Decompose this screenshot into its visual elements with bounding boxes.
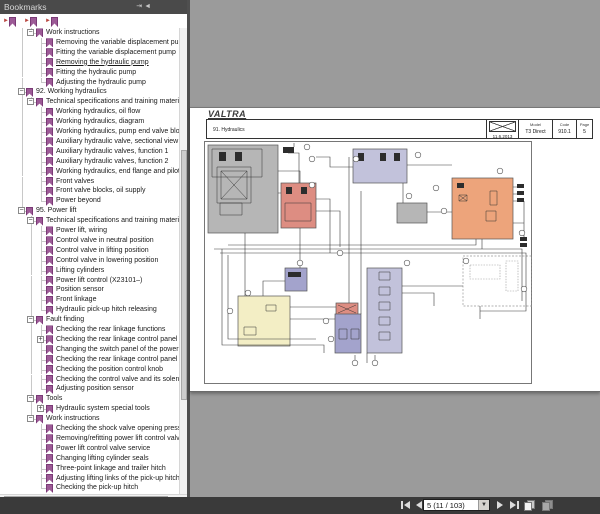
tree-guide xyxy=(31,266,32,276)
triangle-left-icon xyxy=(404,501,410,509)
tree-guide xyxy=(41,280,46,281)
bookmark-icon[interactable] xyxy=(46,375,53,384)
bar xyxy=(401,501,403,509)
bookmark-item[interactable]: Power lift control valve service xyxy=(56,444,150,454)
page-number-select[interactable]: 5 (11 / 103) ▼ xyxy=(423,499,490,511)
tree-guide xyxy=(41,330,46,331)
bookmark-icon[interactable] xyxy=(46,276,53,285)
tree-guide xyxy=(41,172,46,173)
bookmark-item[interactable]: Front linkage xyxy=(56,295,96,305)
bookmarks-panel-title: Bookmarks xyxy=(4,2,47,12)
bookmark-icon[interactable] xyxy=(46,157,53,166)
bookmark-icon[interactable] xyxy=(46,306,53,315)
tree-guide xyxy=(31,295,32,305)
bookmark-item[interactable]: Position sensor xyxy=(56,285,104,295)
bookmark-icon[interactable] xyxy=(26,88,33,97)
tree-guide xyxy=(31,236,32,246)
bookmark-item[interactable]: Auxiliary hydraulic valves, function 1 xyxy=(56,147,168,157)
first-page-button[interactable] xyxy=(401,500,413,511)
bookmarks-panel: Bookmarks ⇥◄ ► ► ► −Work instructionsRem… xyxy=(0,0,187,501)
tree-guide xyxy=(41,370,46,371)
bookmark-icon[interactable] xyxy=(26,207,33,216)
bookmark-item[interactable]: Hydraulic pick-up hitch releasing xyxy=(56,305,157,315)
document-page: VALTRA 91. Hydraulics 11.6.2013 Model T3… xyxy=(190,107,600,392)
bookmark-icon[interactable] xyxy=(46,266,53,275)
page-layout-icon[interactable] xyxy=(524,500,537,511)
tree-guide xyxy=(31,365,32,375)
bookmark-item[interactable]: Fault finding xyxy=(46,315,84,325)
page-cell: Page 5 xyxy=(576,120,592,138)
bookmarks-tree: −Work instructionsRemoving the variable … xyxy=(0,28,179,494)
tree-guide xyxy=(31,404,32,414)
bookmark-item[interactable]: Work instructions xyxy=(46,414,100,424)
bookmark-item[interactable]: Hydraulic system special tools xyxy=(56,404,150,414)
tree-guide xyxy=(22,28,23,38)
bookmark-icon[interactable] xyxy=(46,325,53,334)
bookmark-item[interactable]: Fitting the hydraulic pump xyxy=(56,68,136,78)
triangle-right-icon xyxy=(510,501,516,509)
bookmark-ribbon-icon xyxy=(51,17,58,27)
bookmark-icon[interactable] xyxy=(36,316,43,325)
bookmark-icon[interactable] xyxy=(46,137,53,146)
tree-guide xyxy=(31,355,32,365)
tree-guide xyxy=(31,256,32,266)
bookmark-item[interactable]: Lifting cylinders xyxy=(56,266,104,276)
bookmark-item[interactable]: Adjusting position sensor xyxy=(56,384,134,394)
code-value: 910.1 xyxy=(553,129,576,135)
bookmark-item[interactable]: Removing the hydraulic pump xyxy=(56,58,149,68)
bookmark-item[interactable]: Changing lifting cylinder seals xyxy=(56,454,149,464)
bookmark-item[interactable]: Checking the rear linkage control panel xyxy=(56,335,177,345)
bookmark-item[interactable]: Working hydraulics, pump end valve block xyxy=(56,127,179,137)
dropdown-arrow-icon[interactable]: ▼ xyxy=(478,500,489,510)
tree-guide xyxy=(41,350,46,351)
bookmark-item[interactable]: Power lift control (X23101–) xyxy=(56,276,142,286)
tree-guide xyxy=(22,147,23,157)
tree-guide xyxy=(41,181,46,182)
bookmark-item[interactable]: Tools xyxy=(46,394,62,404)
bookmark-icon[interactable] xyxy=(46,58,53,67)
red-arrow-icon: ► xyxy=(3,18,9,24)
block-priority-valve xyxy=(397,203,427,223)
tree-guide xyxy=(41,241,46,242)
bookmark-icon[interactable] xyxy=(46,256,53,265)
tree-guide xyxy=(41,310,46,311)
page-label: Page xyxy=(577,122,592,127)
document-area: VALTRA 91. Hydraulics 11.6.2013 Model T3… xyxy=(190,0,600,497)
tree-guide xyxy=(31,325,32,335)
bookmark-icon[interactable] xyxy=(46,246,53,255)
tree-guide xyxy=(41,261,46,262)
triangle-right-icon xyxy=(497,501,503,509)
tree-guide xyxy=(22,78,23,88)
tree-guide xyxy=(41,449,46,450)
block-power-lift-valve xyxy=(238,296,290,346)
bookmark-icon[interactable] xyxy=(46,335,53,344)
block-solenoid-valve xyxy=(285,268,307,291)
bookmark-icon[interactable] xyxy=(46,474,53,483)
tree-guide xyxy=(41,43,46,44)
bookmark-item[interactable]: Checking the rear linkage control panel … xyxy=(56,355,179,365)
revision-cell: 11.6.2013 xyxy=(486,120,518,138)
bookmark-item[interactable]: Removing/refitting power lift control va… xyxy=(56,434,179,444)
bookmark-icon[interactable] xyxy=(46,345,53,354)
goto-bookmark-icon[interactable]: ► xyxy=(4,16,18,28)
bookmark-icon[interactable] xyxy=(46,385,53,394)
bookmark-item[interactable]: Adjusting lifting links of the pick-up h… xyxy=(56,474,179,484)
tree-guide xyxy=(22,137,23,147)
bookmark-icon[interactable] xyxy=(46,226,53,235)
tree-guide xyxy=(41,271,46,272)
model-cell: Model T3 Direct xyxy=(518,120,552,138)
tree-guide xyxy=(41,53,46,54)
expander-toggle[interactable]: + xyxy=(37,405,44,412)
red-arrow-icon: ► xyxy=(45,18,51,24)
tree-guide xyxy=(41,63,46,64)
bookmark-ribbon-icon xyxy=(9,17,16,27)
bookmark-icon[interactable] xyxy=(46,434,53,443)
bookmark-icon[interactable] xyxy=(46,424,53,433)
model-value: T3 Direct xyxy=(519,129,552,135)
tree-guide xyxy=(31,246,32,256)
block-front-loader-valve xyxy=(208,145,278,233)
tree-guide xyxy=(41,231,46,232)
bookmark-item[interactable]: Checking the position control knob xyxy=(56,365,163,375)
crossed-box-icon xyxy=(489,121,516,132)
bookmark-item[interactable]: Checking the shock valve opening pressur… xyxy=(56,424,179,434)
bookmark-item[interactable]: Control valve in neutral position xyxy=(56,236,154,246)
tree-guide xyxy=(22,117,23,127)
expander-toggle[interactable]: − xyxy=(18,207,25,214)
tree-guide xyxy=(41,478,46,479)
tree-guide xyxy=(22,186,23,196)
red-arrow-icon: ► xyxy=(24,18,30,24)
tree-guide xyxy=(22,38,23,48)
tree-guide xyxy=(41,429,46,430)
tree-guide xyxy=(41,142,46,143)
bookmark-icon[interactable] xyxy=(46,365,53,374)
bookmark-item[interactable]: Front valve blocks, oil supply xyxy=(56,186,145,196)
expander-toggle[interactable]: − xyxy=(27,316,34,323)
revision-date: 11.6.2013 xyxy=(489,134,516,139)
last-page-button[interactable] xyxy=(508,500,520,511)
bookmark-item[interactable]: Checking the pick-up hitch xyxy=(56,483,138,493)
tree-guide xyxy=(22,177,23,187)
bookmark-item[interactable]: Auxiliary hydraulic valves, function 2 xyxy=(56,157,168,167)
bookmark-item[interactable]: Removing the variable displacement pump xyxy=(56,38,179,48)
section-title: 91. Hydraulics xyxy=(207,120,486,138)
bookmark-icon[interactable] xyxy=(46,118,53,127)
tree-guide xyxy=(41,191,46,192)
bookmark-icon[interactable] xyxy=(46,108,53,117)
bookmark-icon[interactable] xyxy=(36,98,43,107)
front-page-icon xyxy=(524,502,532,511)
bookmark-icon[interactable] xyxy=(36,217,43,226)
bookmark-item[interactable]: Front valves xyxy=(56,177,94,187)
bookmarks-toolbar: ► ► ► xyxy=(0,14,187,29)
tree-guide xyxy=(41,122,46,123)
tree-guide xyxy=(31,345,32,355)
bookmark-icon[interactable] xyxy=(46,286,53,295)
bookmark-item[interactable]: Three-point linkage and trailer hitch xyxy=(56,464,166,474)
tree-guide xyxy=(31,276,32,286)
tree-guide xyxy=(31,335,32,345)
tree-guide xyxy=(31,226,32,236)
tree-guide xyxy=(41,300,46,301)
expander-toggle[interactable]: + xyxy=(37,336,44,343)
bar xyxy=(517,501,519,509)
bookmark-icon[interactable] xyxy=(46,197,53,206)
bookmark-icon[interactable] xyxy=(46,147,53,156)
bookmark-icon[interactable] xyxy=(46,68,53,77)
bookmark-ribbon-icon xyxy=(30,17,37,27)
bookmark-item[interactable]: Control valve in lowering position xyxy=(56,256,158,266)
tree-guide xyxy=(41,459,46,460)
tree-guide xyxy=(41,132,46,133)
expander-toggle[interactable]: − xyxy=(27,98,34,105)
bookmark-icon[interactable] xyxy=(36,28,43,37)
bookmark-item[interactable]: Checking the control valve and its solen… xyxy=(56,375,179,385)
page-header-table: 91. Hydraulics 11.6.2013 Model T3 Direct… xyxy=(206,119,593,139)
bookmark-item[interactable]: Technical specifications and training ma… xyxy=(46,97,179,107)
bookmark-icon[interactable] xyxy=(46,464,53,473)
tree-guide xyxy=(22,127,23,137)
bookmark-item[interactable]: 92. Working hydraulics xyxy=(36,87,107,97)
expand-bookmarks-icon[interactable]: ► xyxy=(25,16,39,28)
next-page-button[interactable] xyxy=(495,500,507,511)
expander-toggle[interactable]: − xyxy=(27,29,34,36)
code-cell: Code 910.1 xyxy=(552,120,576,138)
tree-guide xyxy=(22,68,23,78)
bookmark-item[interactable]: Control valve in lifting position xyxy=(56,246,149,256)
bookmark-icon[interactable] xyxy=(46,484,53,493)
bookmark-icon[interactable] xyxy=(46,296,53,305)
tree-guide xyxy=(31,285,32,295)
tree-guide xyxy=(22,107,23,117)
bookmark-icon[interactable] xyxy=(46,78,53,87)
bookmark-item[interactable]: Fitting the variable displacement pump xyxy=(56,48,176,58)
bookmark-icon[interactable] xyxy=(46,405,53,414)
bookmark-item[interactable]: Adjusting the hydraulic pump xyxy=(56,78,146,88)
bookmark-item[interactable]: Working hydraulics, end flange and pilot xyxy=(56,167,179,177)
bookmark-item[interactable]: Power beyond xyxy=(56,196,101,206)
tree-guide xyxy=(31,375,32,385)
tree-guide xyxy=(41,152,46,153)
page-value: 5 xyxy=(577,129,592,135)
tree-guide xyxy=(22,58,23,68)
facing-pages-icon[interactable] xyxy=(542,500,555,511)
pin-panel-icon[interactable]: ⇥ xyxy=(136,3,144,10)
pdf-viewer-window: Bookmarks ⇥◄ ► ► ► −Work instructionsRem… xyxy=(0,0,600,514)
tree-guide xyxy=(41,379,46,380)
bookmark-icon[interactable] xyxy=(46,444,53,453)
expander-toggle[interactable]: − xyxy=(27,395,34,402)
bookmark-item[interactable]: Power lift, wiring xyxy=(56,226,107,236)
bookmark-icon[interactable] xyxy=(46,355,53,364)
bookmark-item[interactable]: Working hydraulics, diagram xyxy=(56,117,144,127)
tree-guide xyxy=(41,73,46,74)
navigation-toolbar: 5 (11 / 103) ▼ xyxy=(0,497,600,514)
tree-guide xyxy=(41,488,46,489)
bookmark-item[interactable]: Auxiliary hydraulic valve, sectional vie… xyxy=(56,137,178,147)
bookmark-icon[interactable] xyxy=(46,38,53,47)
tree-guide xyxy=(22,167,23,177)
tree-guide xyxy=(41,439,46,440)
tree-guide xyxy=(41,112,46,113)
tree-guide xyxy=(41,82,46,83)
bookmark-icon[interactable] xyxy=(46,167,53,176)
triangle-left-icon xyxy=(416,501,422,509)
tree-guide xyxy=(31,305,32,315)
tree-guide xyxy=(41,290,46,291)
bookmarks-vertical-scrollbar[interactable] xyxy=(179,28,187,494)
bookmark-item[interactable]: 95. Power lift xyxy=(36,206,76,216)
collapse-bookmarks-icon[interactable]: ► xyxy=(46,16,60,28)
hydraulic-schematic xyxy=(204,141,532,384)
bookmark-icon[interactable] xyxy=(46,187,53,196)
model-label: Model xyxy=(519,122,552,127)
bookmark-item[interactable]: Work instructions xyxy=(46,28,100,38)
tree-guide xyxy=(22,48,23,58)
bookmark-icon[interactable] xyxy=(46,236,53,245)
bookmark-item[interactable]: Working hydraulics, oil flow xyxy=(56,107,140,117)
tree-guide xyxy=(41,469,46,470)
bookmark-item[interactable]: Technical specifications and training ma… xyxy=(46,216,179,226)
bookmark-icon[interactable] xyxy=(46,454,53,463)
panel-header-icons: ⇥◄ xyxy=(136,0,153,14)
bookmark-icon[interactable] xyxy=(36,415,43,424)
front-page-icon xyxy=(542,502,550,511)
code-label: Code xyxy=(553,122,576,127)
bookmark-icon[interactable] xyxy=(46,48,53,57)
tree-guide xyxy=(41,201,46,202)
tree-guide xyxy=(41,360,46,361)
tree-guide xyxy=(22,157,23,167)
tree-guide xyxy=(31,384,32,394)
tree-guide xyxy=(22,196,23,206)
page-number-value: 5 (11 / 103) xyxy=(427,501,465,510)
bookmark-icon[interactable] xyxy=(46,127,53,136)
bookmarks-panel-header: Bookmarks ⇥◄ xyxy=(0,0,187,14)
bookmark-icon[interactable] xyxy=(46,177,53,186)
tree-guide xyxy=(22,97,23,107)
collapse-panel-icon[interactable]: ◄ xyxy=(144,3,153,10)
bookmark-icon[interactable] xyxy=(36,395,43,404)
bookmark-item[interactable]: Checking the rear linkage functions xyxy=(56,325,165,335)
tree-guide xyxy=(41,251,46,252)
expander-toggle[interactable]: − xyxy=(27,415,34,422)
tree-guide xyxy=(41,162,46,163)
bookmark-item[interactable]: Changing the switch panel of the power l… xyxy=(56,345,179,355)
expander-toggle[interactable]: − xyxy=(18,88,25,95)
expander-toggle[interactable]: − xyxy=(27,217,34,224)
tree-guide xyxy=(41,389,46,390)
